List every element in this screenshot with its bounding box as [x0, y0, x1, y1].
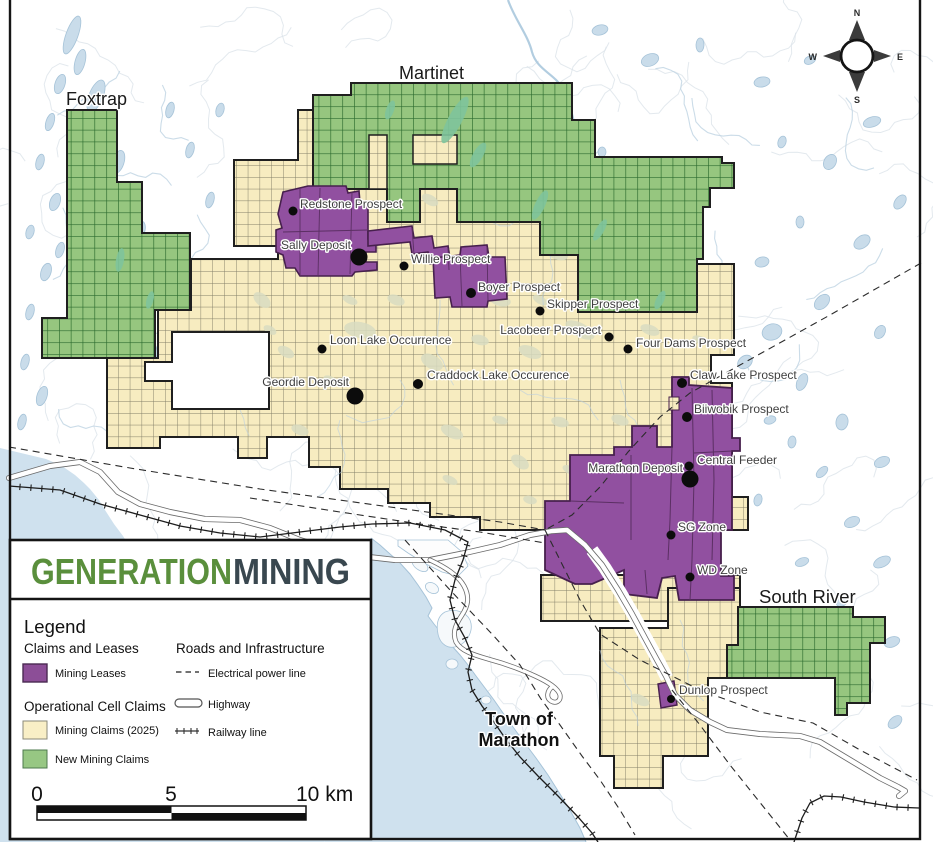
- svg-text:Railway line: Railway line: [208, 727, 267, 739]
- svg-text:Geordie Deposit: Geordie Deposit: [262, 375, 349, 389]
- svg-text:Foxtrap: Foxtrap: [66, 89, 127, 109]
- svg-text:Loon Lake Occurrence: Loon Lake Occurrence: [330, 333, 452, 347]
- svg-text:Redstone Prospect: Redstone Prospect: [300, 197, 403, 211]
- svg-text:10 km: 10 km: [296, 783, 353, 806]
- svg-text:Operational Cell Claims: Operational Cell Claims: [24, 699, 166, 714]
- svg-text:E: E: [897, 52, 903, 62]
- svg-text:Central Feeder: Central Feeder: [697, 453, 777, 467]
- svg-text:Willie Prospect: Willie Prospect: [411, 252, 491, 266]
- svg-text:Mining Claims (2025): Mining Claims (2025): [55, 725, 159, 737]
- svg-text:Dunlop Prospect: Dunlop Prospect: [679, 683, 768, 697]
- svg-text:Marathon Deposit: Marathon Deposit: [588, 461, 683, 475]
- svg-text:Sally Deposit: Sally Deposit: [281, 238, 352, 252]
- svg-text:Mining Leases: Mining Leases: [55, 668, 126, 680]
- svg-text:Martinet: Martinet: [399, 63, 464, 83]
- svg-text:Skipper Prospect: Skipper Prospect: [547, 297, 639, 311]
- svg-text:MINING: MINING: [233, 551, 350, 592]
- svg-text:Town of: Town of: [485, 709, 554, 729]
- svg-text:Roads and Infrastructure: Roads and Infrastructure: [176, 641, 325, 656]
- svg-text:W: W: [809, 52, 818, 62]
- svg-text:S: S: [854, 95, 860, 105]
- svg-text:Electrical power line: Electrical power line: [208, 668, 306, 680]
- svg-text:Marathon: Marathon: [479, 730, 560, 750]
- svg-text:Claw Lake Prospect: Claw Lake Prospect: [690, 368, 797, 382]
- svg-text:5: 5: [165, 783, 177, 806]
- svg-text:SG Zone: SG Zone: [678, 520, 726, 534]
- svg-text:Lacobeer Prospect: Lacobeer Prospect: [500, 323, 601, 337]
- svg-text:Boyer Prospect: Boyer Prospect: [478, 280, 561, 294]
- svg-text:Highway: Highway: [208, 699, 251, 711]
- svg-text:New Mining Claims: New Mining Claims: [55, 754, 150, 766]
- svg-text:Craddock Lake Occurence: Craddock Lake Occurence: [427, 368, 569, 382]
- svg-text:N: N: [854, 8, 861, 18]
- svg-text:Four Dams Prospect: Four Dams Prospect: [636, 336, 747, 350]
- svg-text:WD Zone: WD Zone: [697, 563, 748, 577]
- svg-text:Biiwobik Prospect: Biiwobik Prospect: [694, 402, 789, 416]
- svg-text:Claims and Leases: Claims and Leases: [24, 641, 139, 656]
- svg-text:GENERATION: GENERATION: [31, 551, 232, 592]
- svg-text:South River: South River: [759, 586, 856, 607]
- svg-text:Legend: Legend: [24, 616, 86, 637]
- svg-text:0: 0: [31, 783, 43, 806]
